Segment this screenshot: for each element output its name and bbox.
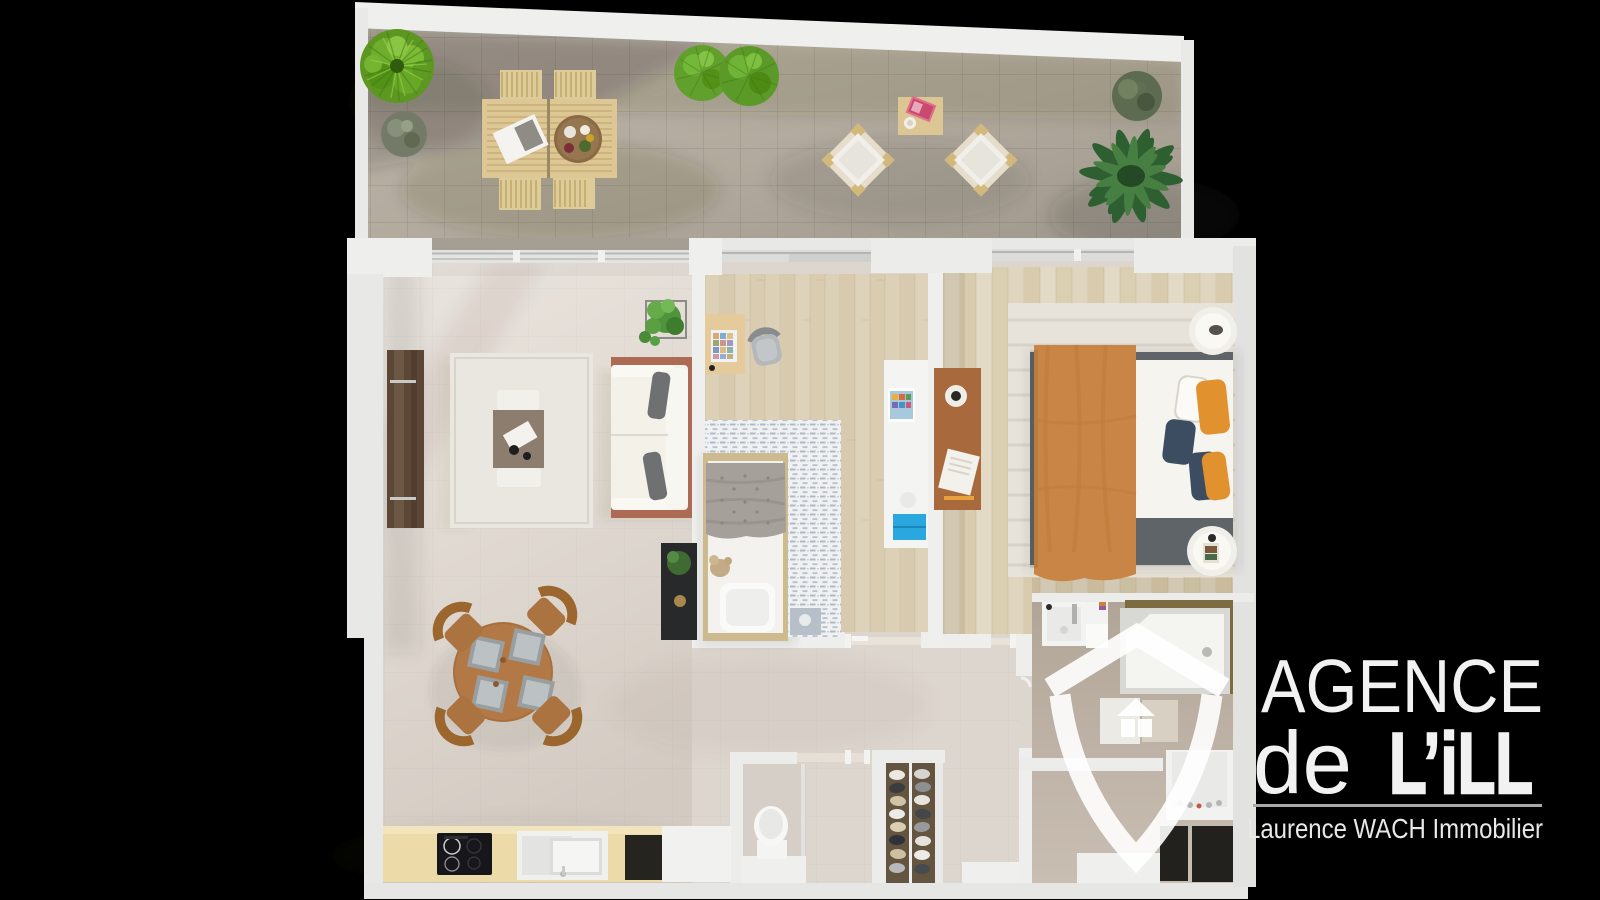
svg-text:de: de [1253,713,1352,812]
svg-text:Laurence WACH Immobilier: Laurence WACH Immobilier [1247,813,1543,844]
svg-text:L’iLL: L’iLL [1389,716,1533,812]
